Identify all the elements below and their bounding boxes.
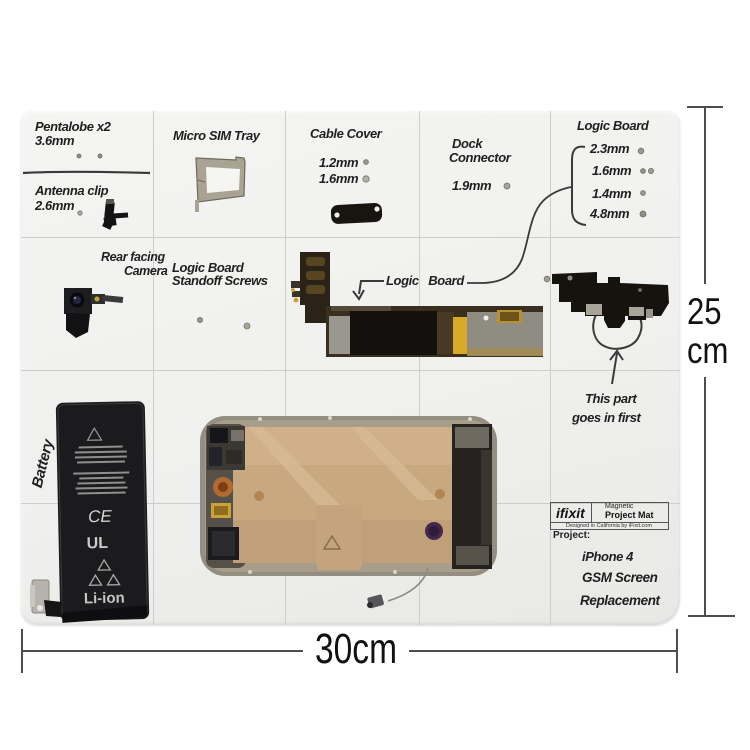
- svg-text:UL: UL: [87, 535, 109, 552]
- svg-text:CE: CE: [88, 507, 113, 527]
- svg-text:Li-ion: Li-ion: [84, 590, 125, 608]
